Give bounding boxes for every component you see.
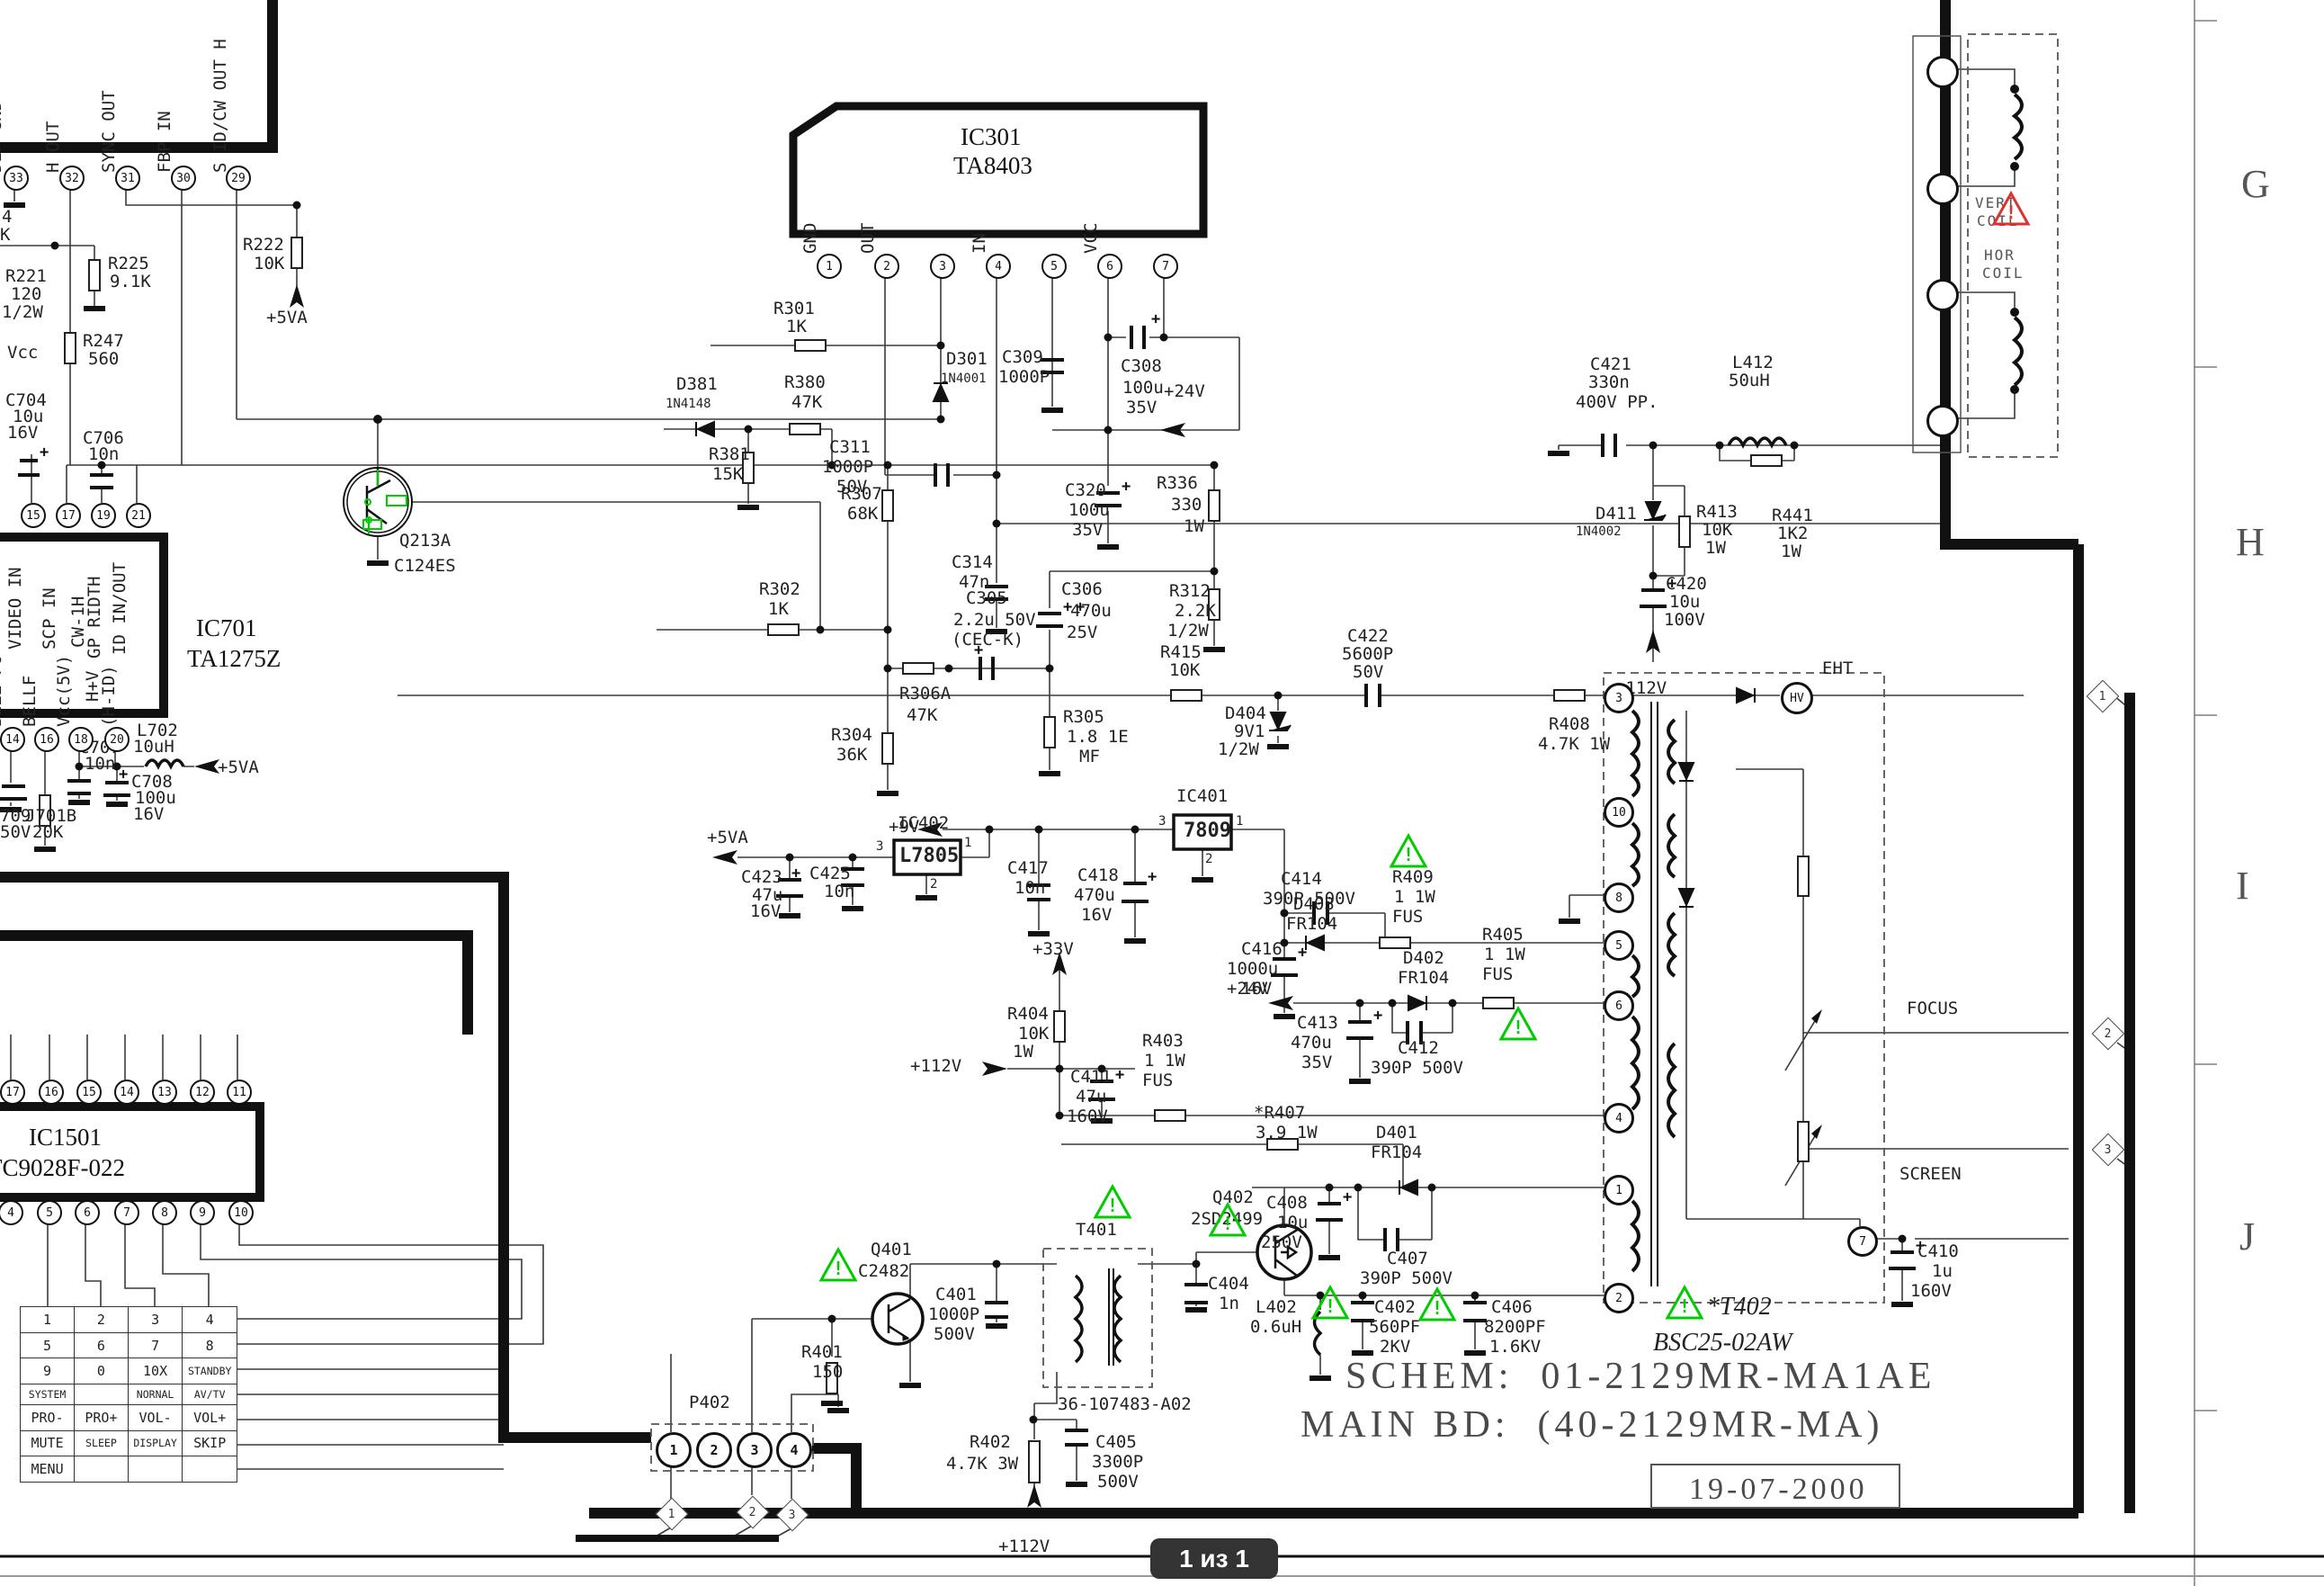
ref: C423	[741, 869, 782, 887]
ref: R380	[784, 374, 826, 392]
keypad-cell-skip: SKIP	[183, 1430, 237, 1456]
val: 2.2K	[1175, 603, 1216, 621]
val: 16V	[7, 425, 38, 443]
pin-21: 21	[126, 503, 151, 528]
svg-text:+: +	[791, 865, 800, 883]
offpage-marker-label: 3	[2105, 1142, 2112, 1156]
val: 16V	[750, 903, 781, 921]
ref: L402	[1256, 1299, 1297, 1317]
ref: R301	[773, 300, 815, 318]
keypad-cell-10x: 10X	[128, 1358, 183, 1384]
pin-num: 3	[1158, 815, 1166, 829]
pin-16: 16	[34, 727, 59, 752]
warning-icon: !	[1208, 1202, 1247, 1241]
keypad-cell-sleep: SLEEP	[75, 1430, 129, 1456]
keypad-cell-av/tv: AV/TV	[183, 1384, 237, 1405]
ref: C410	[1917, 1243, 1959, 1261]
pin-num: 3	[876, 840, 883, 854]
val: 35V	[1126, 399, 1157, 417]
connector-terminal	[1926, 279, 1959, 311]
keypad-matrix: 123456789010XSTANDBYSYSTEMNORNALAV/TVPRO…	[20, 1306, 237, 1483]
ic-pin-name: DEF GND	[0, 101, 5, 173]
offpage-marker-label: 1	[668, 1507, 675, 1520]
ref: IC401	[1176, 788, 1228, 806]
val: 10uH	[133, 739, 174, 757]
ref: D301	[946, 351, 988, 369]
val: 1N4148	[666, 398, 711, 411]
svg-text:+: +	[1343, 1188, 1352, 1206]
val: 25V	[1067, 624, 1097, 642]
keypad-cell-1: 1	[21, 1307, 75, 1333]
pin-12: 12	[190, 1080, 215, 1105]
ref: R222	[243, 237, 284, 255]
svg-text:!: !	[1679, 1295, 1690, 1317]
pin-1: 1	[1604, 1175, 1634, 1205]
val: 330	[1171, 497, 1202, 515]
pin-HV: HV	[1781, 682, 1813, 714]
ic-pin-name: H OUT	[45, 121, 63, 173]
val: 10n	[1015, 880, 1045, 898]
pin-4: 4	[986, 254, 1011, 279]
pin-4: 4	[1604, 1103, 1634, 1133]
val: FUS	[1142, 1072, 1173, 1090]
ic-title: IC701	[196, 615, 257, 641]
rail: +5VA	[266, 309, 308, 327]
val: 390P 500V	[1360, 1270, 1452, 1288]
pin-2: 2	[874, 254, 899, 279]
ref: R413	[1696, 504, 1738, 522]
val: FR104	[1371, 1144, 1422, 1162]
ref: C422	[1347, 628, 1389, 646]
val: 100V	[1664, 612, 1705, 630]
val: 50uH	[1729, 372, 1770, 390]
val: 36-107483-A02	[1058, 1396, 1192, 1414]
transformer-type: BSC25-02AW	[1653, 1330, 1792, 1356]
ic-pin-name: OUT	[860, 223, 878, 254]
ref: C314	[952, 554, 993, 572]
svg-text:!: !	[2006, 202, 2016, 223]
val: 15K	[712, 466, 743, 484]
partial-label: 4	[2, 209, 12, 227]
pin-33: 33	[4, 166, 29, 191]
pin-7: 7	[114, 1200, 139, 1225]
transformer-ref: *T402	[1707, 1294, 1772, 1320]
pin-5: 5	[1604, 930, 1634, 961]
ref: C405	[1095, 1434, 1137, 1452]
rail: +5VA	[218, 759, 259, 777]
val: 50V	[1353, 664, 1383, 682]
keypad-cell	[183, 1456, 237, 1483]
val: 390P 500V	[1371, 1060, 1463, 1078]
val: 10K	[1018, 1026, 1049, 1044]
pin-num: 1	[1236, 815, 1243, 829]
val: 330n	[1588, 374, 1630, 392]
rail: +112V	[910, 1058, 961, 1076]
val: 160V	[1067, 1108, 1108, 1126]
pin-6: 6	[75, 1200, 100, 1225]
ic-pin-name: BELLF	[22, 676, 40, 727]
val: 68K	[847, 506, 878, 524]
keypad-cell-3: 3	[128, 1307, 183, 1333]
val: 1u	[1932, 1263, 1953, 1281]
ref: C411	[1070, 1069, 1112, 1087]
schem-date: 19-07-2000	[1689, 1474, 1868, 1506]
ic-pin-name: SCP IN	[41, 587, 59, 650]
val: (CEC-K)	[952, 632, 1023, 650]
ic-pin-name: GND	[802, 223, 820, 254]
ic-pin-name: VCC	[1083, 223, 1101, 254]
ref: C306	[1061, 581, 1103, 599]
connector-terminal	[1926, 173, 1959, 205]
ic-pin-name: S ID/CW OUT H	[212, 39, 230, 173]
warning-icon: !	[1498, 1006, 1538, 1045]
pin-30: 30	[171, 166, 196, 191]
keypad-cell-nornal: NORNAL	[128, 1384, 183, 1405]
ic-pin-name: (H-ID)	[101, 665, 119, 727]
val: 10n	[85, 756, 115, 774]
keypad-cell-0: 0	[75, 1358, 129, 1384]
ref: D403	[1293, 896, 1335, 914]
pin-7: 7	[1153, 254, 1178, 279]
val: 1N4002	[1576, 525, 1622, 539]
val: 3.9 1W	[1256, 1125, 1318, 1142]
ref: P402	[689, 1394, 730, 1412]
val: 500V	[934, 1326, 975, 1344]
pin-19: 19	[91, 503, 116, 528]
pin-17: 17	[56, 503, 81, 528]
val: 1W	[1705, 540, 1726, 558]
ref: R401	[801, 1344, 843, 1362]
svg-text:+: +	[40, 444, 49, 461]
rail: +33V	[1032, 941, 1074, 959]
val: C124ES	[394, 558, 456, 576]
ref: C421	[1590, 356, 1631, 374]
margin-letter-H: H	[2236, 522, 2265, 563]
val: 1W	[1184, 518, 1204, 536]
keypad-cell-6: 6	[75, 1332, 129, 1358]
val: 560	[88, 351, 119, 369]
val: 35V	[1301, 1054, 1332, 1072]
val: 5600P	[1342, 646, 1393, 664]
warning-icon: !	[1389, 833, 1428, 873]
val: 36K	[836, 747, 867, 765]
rail: Vcc	[7, 345, 38, 363]
pin-14: 14	[114, 1080, 139, 1105]
pin-8: 8	[1604, 883, 1634, 913]
coil-name: HOR	[1984, 248, 2016, 264]
val: 470u	[1291, 1035, 1332, 1053]
ref: R307	[841, 486, 882, 504]
warning-icon: !	[1310, 1285, 1350, 1324]
val: 10n	[824, 883, 854, 901]
val: 10K	[1169, 662, 1200, 680]
page-indicator-badge: 1 из 1	[1150, 1538, 1278, 1579]
margin-letter-G: G	[2241, 164, 2270, 205]
val: 150	[812, 1364, 843, 1382]
pin-3: 3	[737, 1432, 773, 1468]
val: MF	[1079, 748, 1100, 766]
val: 560PF	[1369, 1319, 1420, 1337]
svg-text:+: +	[1373, 1007, 1382, 1025]
val: 0.6uH	[1250, 1319, 1301, 1337]
ref: C309	[1002, 349, 1043, 367]
schematic-page: +++ +++ +++ +++ +++	[0, 0, 2324, 1586]
ref: C414	[1281, 871, 1322, 889]
offpage-marker-label: 2	[2105, 1026, 2112, 1040]
ref: C305	[966, 590, 1007, 608]
rail: +24V	[1227, 981, 1268, 999]
pin-1: 1	[656, 1432, 692, 1468]
pin-2: 2	[696, 1432, 732, 1468]
keypad-cell-8: 8	[183, 1332, 237, 1358]
val: 1K	[786, 318, 807, 336]
coil-name: COIL	[1982, 266, 2025, 282]
val: FUS	[1392, 909, 1423, 927]
keypad-cell-mute: MUTE	[21, 1430, 75, 1456]
keypad-cell-vol+: VOL+	[183, 1404, 237, 1430]
offpage-marker-label: 3	[789, 1508, 796, 1521]
pin-7: 7	[1847, 1226, 1878, 1257]
val: 3300P	[1092, 1454, 1143, 1472]
val: 35V	[1072, 522, 1103, 540]
keypad-cell	[75, 1384, 129, 1405]
keypad-cell-pro+: PRO+	[75, 1404, 129, 1430]
partial-label: K	[0, 227, 10, 245]
pin-num: 1	[964, 837, 971, 850]
svg-text:!: !	[1107, 1195, 1118, 1216]
ref: R403	[1142, 1033, 1184, 1051]
keypad-cell-display: DISPLAY	[128, 1430, 183, 1456]
svg-text:+: +	[1151, 310, 1160, 328]
ref: R336	[1157, 475, 1198, 493]
val: 120	[11, 286, 41, 304]
val: 47K	[791, 394, 822, 412]
pin-15: 15	[21, 503, 46, 528]
ref: C311	[829, 439, 871, 457]
ref: D402	[1403, 950, 1444, 968]
ic-title: IC1501	[29, 1125, 102, 1150]
ic-title: TA8403	[953, 153, 1032, 178]
pin-11: 11	[227, 1080, 252, 1105]
warning-icon: !	[818, 1247, 858, 1286]
ref: Q401	[871, 1241, 912, 1259]
val: 100u	[1122, 380, 1164, 398]
ref: C406	[1491, 1299, 1533, 1317]
schematic-graphics: +++ +++ +++ +++ +++	[0, 0, 2324, 1586]
keypad-cell	[75, 1456, 129, 1483]
ref: C408	[1266, 1195, 1308, 1213]
ref: C401	[935, 1286, 977, 1304]
pin-6: 6	[1604, 990, 1634, 1021]
ref: T401	[1076, 1222, 1117, 1240]
ic-title: TA1275Z	[187, 646, 281, 671]
val: 1n	[1219, 1295, 1239, 1313]
ref: C402	[1374, 1299, 1416, 1317]
val: 9V1	[1234, 723, 1265, 741]
val: FR104	[1286, 916, 1337, 934]
pin-14: 14	[0, 727, 25, 752]
rail: +5VA	[707, 829, 748, 847]
pin-num: 2	[930, 878, 937, 892]
pin-8: 8	[152, 1200, 177, 1225]
val: 2KV	[1380, 1339, 1410, 1357]
offpage-marker-label: 2	[749, 1505, 756, 1519]
offpage-marker-label: 1	[2099, 689, 2106, 703]
keypad-cell-system: SYSTEM	[21, 1384, 75, 1405]
ref: R402	[970, 1434, 1011, 1452]
margin-letter-I: I	[2236, 865, 2249, 907]
pin-num: 2	[1205, 853, 1212, 866]
pin-6: 6	[1097, 254, 1122, 279]
board-number: MAIN BD: (40-2129MR-MA)	[1301, 1405, 1884, 1445]
val: 1K	[768, 601, 789, 619]
ic-pin-name: VIDEO IN	[7, 567, 25, 650]
val: 400V PP.	[1576, 394, 1658, 412]
val: 470u	[1074, 887, 1115, 905]
warning-icon: !	[1093, 1184, 1132, 1223]
ref: C407	[1387, 1250, 1428, 1268]
ref: R312	[1169, 583, 1211, 601]
val: 160V	[1910, 1283, 1952, 1301]
keypad-cell-menu: MENU	[21, 1456, 75, 1483]
val: 1000u	[1227, 961, 1278, 979]
val: 1000P	[928, 1306, 979, 1324]
val: 1K2	[1777, 525, 1808, 543]
ref: R302	[759, 581, 800, 599]
pin-4: 4	[776, 1432, 812, 1468]
pin-9: 9	[190, 1200, 215, 1225]
val: 1 1W	[1484, 946, 1525, 964]
pin-5: 5	[1041, 254, 1067, 279]
val: 1/2W	[1167, 623, 1209, 641]
ref: R305	[1063, 709, 1104, 727]
ref: R381	[709, 446, 750, 464]
val: 8200PF	[1484, 1319, 1546, 1337]
val: 10u	[1669, 594, 1700, 612]
val: 16V	[1081, 907, 1112, 925]
val: 1.8 1E	[1067, 729, 1129, 747]
ref: C404	[1208, 1276, 1249, 1294]
ref: R415	[1160, 644, 1202, 662]
pin-15: 15	[76, 1080, 102, 1105]
pin-10: 10	[228, 1200, 254, 1225]
keypad-cell-4: 4	[183, 1307, 237, 1333]
ref: R247	[83, 333, 124, 351]
val: 16V	[133, 806, 164, 824]
ref: R225	[108, 255, 149, 273]
connector-terminal	[1926, 56, 1959, 88]
ref: D404	[1225, 705, 1266, 723]
val: 1/2W	[1218, 741, 1259, 759]
val: 500V	[1097, 1474, 1139, 1492]
val: 10n	[88, 446, 119, 464]
keypad-cell-7: 7	[128, 1332, 183, 1358]
pin-20: 20	[104, 727, 130, 752]
svg-text:+: +	[1115, 1066, 1124, 1084]
pin-2: 2	[1604, 1283, 1634, 1313]
ref: C425	[809, 865, 851, 883]
keypad-cell	[128, 1456, 183, 1483]
ref: C418	[1077, 867, 1119, 885]
svg-text:!: !	[1222, 1213, 1233, 1234]
pin-3: 3	[1604, 683, 1634, 713]
ref: D401	[1376, 1125, 1417, 1142]
val: 10K	[1702, 522, 1732, 540]
keypad-cell-2: 2	[75, 1307, 129, 1333]
val: 9.1K	[110, 273, 151, 291]
val: 20K	[32, 824, 63, 842]
val: 1W	[1013, 1044, 1033, 1062]
val: 4.7K 3W	[946, 1456, 1018, 1474]
svg-text:!: !	[1513, 1017, 1524, 1038]
ic-title: IC301	[961, 124, 1022, 149]
val: 47u	[1076, 1089, 1106, 1107]
partial-label: 50V	[0, 824, 31, 842]
ref: C308	[1121, 358, 1162, 376]
ic-pin-name: FBP IN	[156, 111, 174, 173]
ref: C413	[1297, 1015, 1338, 1033]
warning-icon: !	[1665, 1285, 1704, 1324]
val: 10K	[254, 255, 284, 273]
ic-pin-name: Vcc(5V)	[56, 655, 74, 727]
ref: R221	[5, 268, 47, 286]
svg-text:+: +	[1148, 868, 1157, 886]
ref: R441	[1772, 507, 1813, 525]
ic-pin-name: SYNC OUT	[101, 90, 119, 173]
ref: C320	[1065, 482, 1106, 500]
keypad-cell-9: 9	[21, 1358, 75, 1384]
ic-pin-name: IN	[971, 233, 989, 254]
ref: D381	[676, 376, 718, 394]
ref: *R407	[1254, 1105, 1305, 1123]
val: 1000P	[822, 459, 873, 477]
pin-13: 13	[152, 1080, 177, 1105]
val: 1/2W	[2, 304, 43, 322]
ref: Q213A	[399, 533, 451, 551]
val: L7805	[899, 846, 959, 866]
val: 1N4001	[941, 372, 987, 386]
net: FOCUS	[1907, 1000, 1958, 1018]
val: 10u	[1277, 1214, 1308, 1232]
rail: +24V	[1164, 383, 1205, 401]
keypad-cell-vol-: VOL-	[128, 1404, 183, 1430]
ref: D411	[1596, 506, 1637, 524]
ref: R404	[1007, 1006, 1049, 1024]
pin-29: 29	[226, 166, 251, 191]
keypad-cell-pro-: PRO-	[21, 1404, 75, 1430]
val: FUS	[1482, 966, 1513, 984]
pin-3: 3	[930, 254, 955, 279]
pin-1: 1	[817, 254, 842, 279]
svg-text:!: !	[833, 1258, 844, 1279]
pin-31: 31	[115, 166, 140, 191]
ref: C416	[1241, 941, 1283, 959]
val: 470u	[1070, 603, 1112, 621]
val: C2482	[858, 1263, 909, 1281]
ref: IC402	[898, 815, 949, 833]
keypad-cell-5: 5	[21, 1332, 75, 1358]
ref: C412	[1398, 1040, 1439, 1058]
val: 250V	[1261, 1234, 1302, 1252]
warning-icon: !	[1417, 1286, 1457, 1326]
pin-5: 5	[37, 1200, 62, 1225]
keypad-cell-standby: STANDBY	[183, 1358, 237, 1384]
margin-letter-J: J	[2239, 1216, 2255, 1258]
schem-number: SCHEM: 01-2129MR-MA1AE	[1345, 1357, 1935, 1396]
pin-32: 32	[59, 166, 85, 191]
ref: R405	[1482, 927, 1524, 945]
ic-pin-name: GP RIDTH	[86, 576, 104, 659]
